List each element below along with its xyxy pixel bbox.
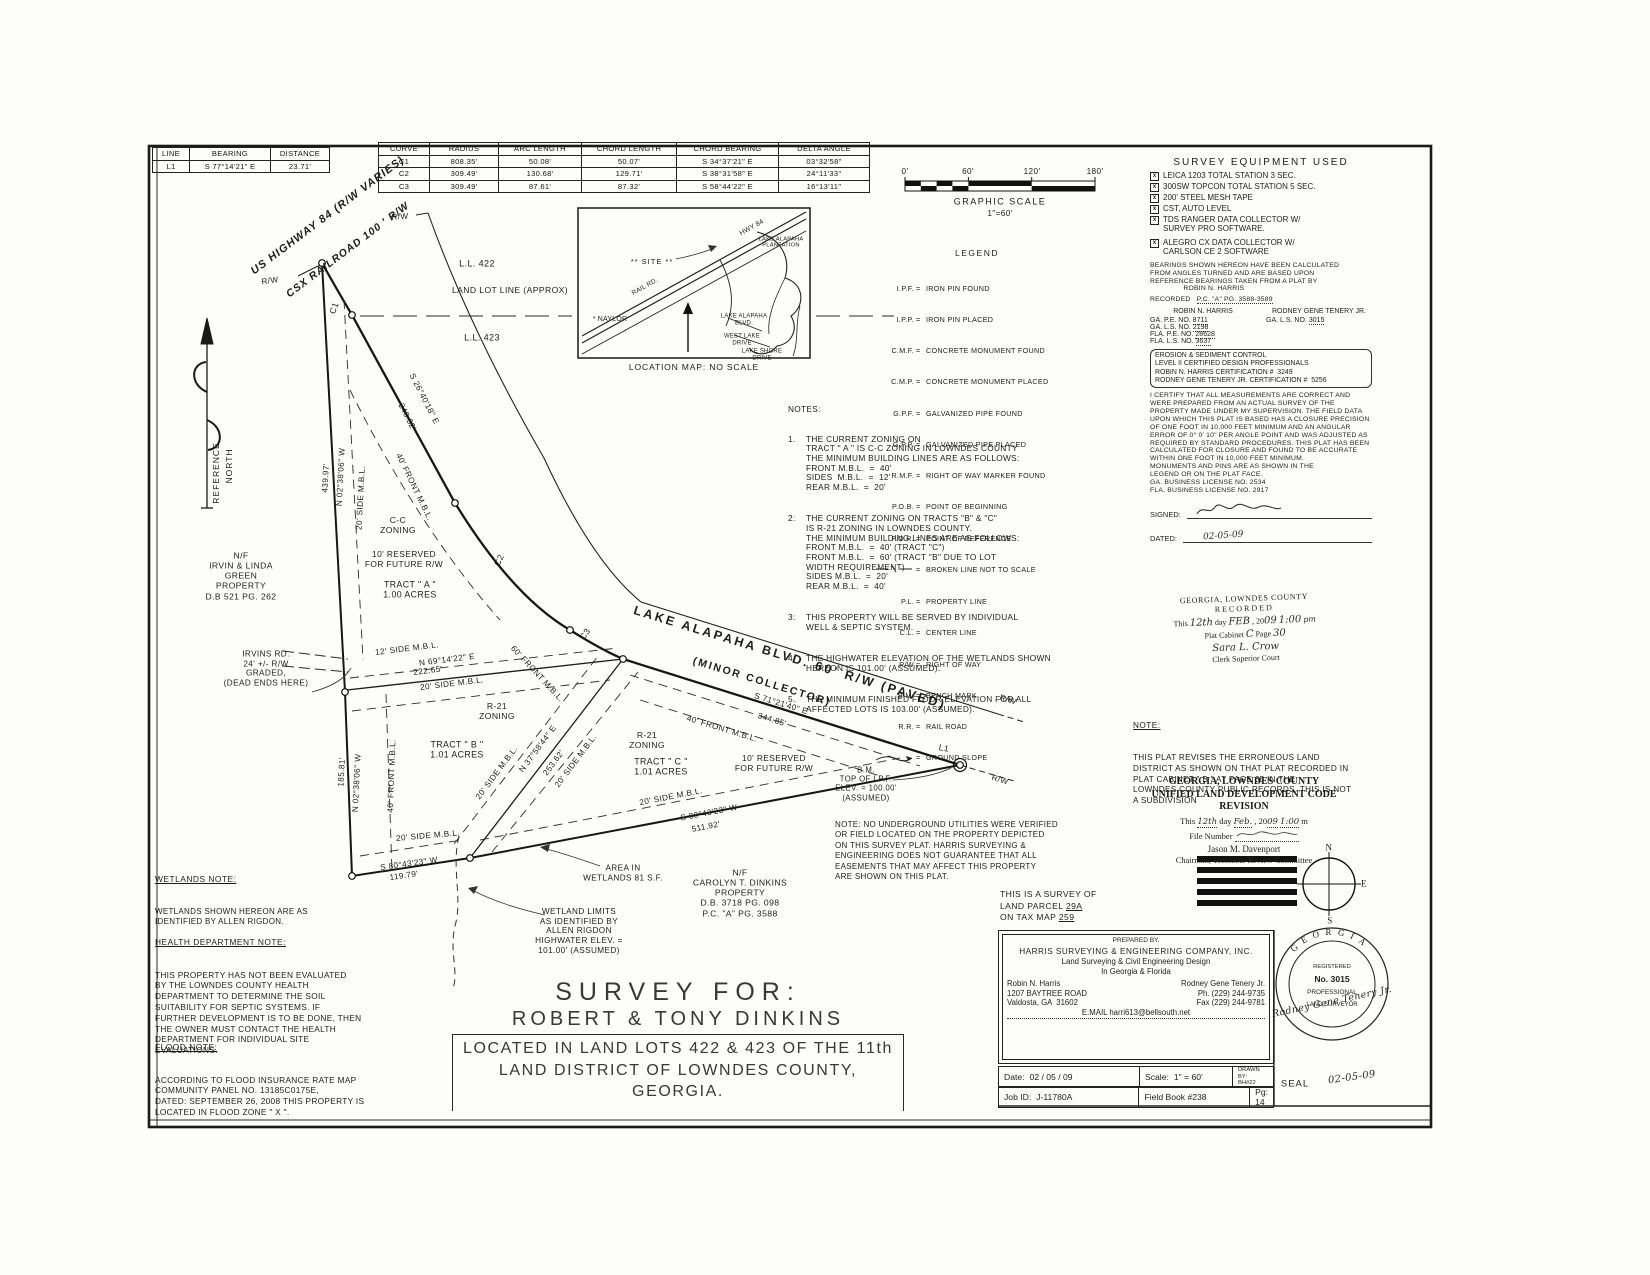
- scale-tick: 60': [962, 167, 974, 177]
- bearing-bottom-long: S 80°43'23" W: [680, 803, 739, 824]
- land-lot-line-label: LAND LOT LINE (APPROX): [452, 285, 568, 295]
- zoning-r21-label: R-21 ZONING: [629, 730, 665, 750]
- uldc-day: 12th: [1197, 817, 1217, 828]
- location-map-caption: LOCATION MAP: NO SCALE: [629, 362, 759, 372]
- survey-of-note: THIS IS A SURVEY OF LAND PARCEL 29A ON T…: [1000, 889, 1097, 924]
- email: E.MAIL harri613@bellsouth.net: [1007, 1008, 1265, 1019]
- uldc-year: 09: [1267, 817, 1278, 828]
- mbl-front40-label: 40' FRONT M.B.L.: [686, 714, 759, 745]
- stamp-month: FEB: [1228, 616, 1250, 628]
- compass-s: S: [1327, 916, 1332, 927]
- date-scale-row: Date:02 / 05 / 09 Scale:1" = 60' DRAWN B…: [998, 1066, 1274, 1088]
- distance-railroad: 248.32': [396, 402, 418, 433]
- seal-date: 02-05-09: [1327, 1069, 1376, 1087]
- mbl-side20-label: 20' SIDE M.B.L.: [639, 786, 704, 808]
- curve-c2-label: C2: [492, 553, 506, 568]
- stamp-day: 12th: [1190, 617, 1214, 629]
- line-table-header: DISTANCE: [271, 148, 330, 161]
- map-blvd-label: LAKE ALAPAHA BLVD.: [721, 313, 767, 326]
- wetlands-area-label: AREA IN WETLANDS 81 S.F.: [583, 863, 663, 882]
- zoning-r21-label: R-21 ZONING: [479, 701, 515, 721]
- distance-west-upper: 439.97': [320, 463, 331, 493]
- location-description: LOCATED IN LAND LOTS 422 & 423 OF THE 11…: [452, 1034, 904, 1111]
- recorded-stamp: GEORGIA, LOWNDES COUNTY RECORDED This 12…: [1149, 591, 1341, 668]
- erosion-certification-box: EROSION & SEDIMENT CONTROL LEVEL II CERT…: [1150, 349, 1372, 388]
- irvins-road-label: IRVINS RD. 24' +/- R/W GRADED, (DEAD END…: [224, 650, 309, 689]
- client-name: ROBERT & TONY DINKINS: [452, 1008, 904, 1031]
- line-table: LINE BEARING DISTANCE L1 S 77°14'21" E 2…: [152, 147, 330, 173]
- notes-title: NOTES:: [788, 405, 1088, 415]
- mbl-front40-label: 40' FRONT M.B.L.: [386, 739, 398, 813]
- compass-e: E: [1361, 879, 1367, 890]
- location-map-linework: [578, 208, 810, 358]
- mbl-front60-label: 60' FRONT M.B.L.: [508, 644, 565, 704]
- graphic-scale-bar: [905, 177, 1095, 191]
- dated-row: DATED: 02-05-09: [1150, 528, 1372, 543]
- mbl-side20-label: 20' SIDE M.B.L.: [354, 466, 367, 530]
- land-lot-422-label: L.L. 422: [459, 259, 495, 270]
- stamp-time: 1:00: [1279, 614, 1302, 626]
- tract-b-label: TRACT " B " 1.01 ACRES: [430, 740, 483, 761]
- checkbox-icon: x: [1150, 194, 1159, 203]
- distance-division-a: 222.65': [413, 664, 443, 677]
- reference-north-label: REFERENCE: [211, 442, 221, 503]
- seal-number: No. 3015: [1314, 974, 1350, 984]
- seal-signature: Rodney Gene Tenery Jr.: [1271, 984, 1393, 1020]
- company-name: HARRIS SURVEYING & ENGINEERING COMPANY, …: [1007, 947, 1265, 957]
- distance-bottom-long: 511.92': [691, 820, 721, 835]
- line-table-header: BEARING: [190, 148, 271, 161]
- map-rail-label: RAIL RD.: [631, 277, 660, 297]
- compass-n: N: [1326, 843, 1333, 854]
- flood-note: FLOOD NOTE: ACCORDING TO FLOOD INSURANCE…: [155, 1020, 395, 1140]
- stamp-cabinet: C: [1246, 628, 1254, 639]
- scale-tick: 0': [902, 167, 909, 177]
- legend-title: LEGEND: [872, 248, 1082, 259]
- graphic-scale-title: GRAPHIC SCALE: [954, 197, 1047, 208]
- rw-label: R/W: [261, 275, 279, 287]
- green-property-label: N/F IRVIN & LINDA GREEN PROPERTY D.B 521…: [206, 551, 277, 602]
- map-plantation-label: LAKE ALAPAHA PLANTATION: [759, 237, 804, 250]
- line-table-row: L1 S 77°14'21" E 23.71': [153, 160, 330, 173]
- preparer-left: Robin N. Harris 1207 BAYTREE ROAD Valdos…: [1007, 979, 1087, 1008]
- survey-plat-sheet: GEORGIA REGISTERED No. 3015 PROFESSIONAL…: [0, 0, 1650, 1275]
- mbl-side20-label: 20' SIDE M.B.L.: [396, 828, 461, 843]
- curve-table: CURVE RADIUS ARC LENGTH CHORD LENGTH CHO…: [378, 142, 870, 193]
- curve-table-row: C2309.49' 130.68'129.71' S 38°31'58" E24…: [379, 168, 870, 181]
- signed-row: SIGNED:: [1150, 504, 1372, 519]
- rw-label: R/W: [391, 212, 409, 223]
- main-title-block: SURVEY FOR: ROBERT & TONY DINKINS LOCATE…: [452, 978, 904, 1111]
- wetland-limits-label: WETLAND LIMITS AS IDENTIFIED BY ALLEN RI…: [535, 907, 623, 955]
- distance-blvd: 344.85': [757, 711, 788, 729]
- map-naylor-label: * NAYLOR: [593, 316, 628, 324]
- surveyor-certification: I CERTIFY THAT ALL MEASUREMENTS ARE CORR…: [1150, 392, 1372, 494]
- scale-tick: 180': [1087, 167, 1104, 177]
- checkbox-icon: x: [1150, 183, 1159, 192]
- utilities-note: NOTE: NO UNDERGROUND UTILITIES WERE VERI…: [835, 820, 1070, 882]
- uldc-month: Feb.: [1234, 817, 1253, 828]
- graphic-scale-ratio: 1"=60': [987, 209, 1012, 219]
- map-westlake-label: WEST LAKE DRIVE: [724, 333, 760, 346]
- tract-c-label: TRACT " C " 1.01 ACRES: [634, 757, 688, 778]
- curve-c1-label: C1: [327, 301, 341, 316]
- signature-scribble: [1187, 504, 1372, 519]
- checkbox-icon: x: [1150, 239, 1159, 248]
- bearing-west-upper: N 02°38'06" W: [335, 448, 348, 507]
- ground-slope-icon: [872, 753, 914, 765]
- uldc-time: 1:00: [1280, 817, 1299, 828]
- land-lot-423-label: L.L. 423: [464, 333, 500, 344]
- professionals: ROBIN N. HARRIS GA. P.E. NO. 8711 GA. L.…: [1150, 308, 1372, 345]
- reference-north-label: NORTH: [224, 448, 234, 483]
- mbl-side12-label: 12' SIDE M.B.L.: [375, 640, 440, 657]
- reserved-rw-label: 10' RESERVED FOR FUTURE R/W: [365, 550, 443, 570]
- seal-graphic: GEORGIA REGISTERED No. 3015 PROFESSIONAL…: [1276, 927, 1388, 1040]
- mbl-front40-label: 40' FRONT M.B.L.: [394, 452, 435, 522]
- prepared-by-box: PREPARED BY. HARRIS SURVEYING & ENGINEER…: [998, 930, 1274, 1064]
- map-lakeshore-label: LAKE SHORE DRIVE: [742, 348, 782, 361]
- preparer-right: Rodney Gene Tenery Jr. Ph. (229) 244-973…: [1181, 979, 1265, 1008]
- distance-west-lower: 185.81': [336, 757, 347, 787]
- reserved-rw-label: 10' RESERVED FOR FUTURE R/W: [735, 754, 813, 774]
- zoning-cc-label: C-C ZONING: [380, 515, 416, 535]
- seal-state-arc: GEORGIA: [1288, 927, 1372, 954]
- survey-for-title: SURVEY FOR:: [452, 978, 904, 1007]
- map-hwy84-label: HWY 84: [739, 218, 766, 237]
- bearings-note: BEARINGS SHOWN HEREON HAVE BEEN CALCULAT…: [1150, 262, 1372, 294]
- seal-registered: REGISTERED: [1313, 964, 1351, 970]
- checkbox-icon: x: [1150, 172, 1159, 181]
- distance-bottom-short: 119.79': [389, 869, 419, 883]
- checkbox-icon: x: [1150, 205, 1159, 214]
- benchmark-label: B.M. TOP OF I.P.F. ELEV. = 100.00' (ASSU…: [835, 766, 897, 803]
- svg-text:GEORGIA: GEORGIA: [1288, 927, 1372, 954]
- equipment-title: SURVEY EQUIPMENT USED: [1150, 157, 1372, 168]
- seal-label: SEAL: [1281, 1078, 1309, 1089]
- notes-block: NOTES: 1.THE CURRENT ZONING ON TRACT " A…: [788, 386, 1088, 736]
- tract-a-label: TRACT " A " 1.00 ACRES: [383, 580, 436, 601]
- mbl-side20-label: 20' SIDE M.B.L.: [420, 675, 485, 692]
- stamp-year: 09: [1264, 615, 1277, 626]
- right-column: SURVEY EQUIPMENT USED xLEICA 1203 TOTAL …: [1150, 157, 1372, 543]
- curve-table-row: C3309.49' 87.61'87.32' S 58°44'22" E16°1…: [379, 180, 870, 193]
- uldc-revision-block: GEORGIA, LOWNDES COUNTY UNIFIED LAND DEV…: [1130, 776, 1358, 865]
- curve-table-row: C1808.35' 50.08'50.07' S 34°37'21" E03°3…: [379, 155, 870, 168]
- curve-c3-label: C3: [577, 626, 592, 641]
- scale-tick: 120': [1024, 167, 1041, 177]
- line-table-header: LINE: [153, 148, 190, 161]
- checkbox-icon: x: [1150, 216, 1159, 225]
- dated-value: 02-05-09: [1203, 529, 1244, 542]
- dinkins-property-label: N/F CAROLYN T. DINKINS PROPERTY D.B. 371…: [693, 868, 787, 919]
- stamp-page: 30: [1273, 627, 1286, 638]
- recorded-line: RECORDED P.C. "A" PG. 3588-3589: [1150, 296, 1372, 304]
- job-fieldbook-row: Job ID:J-11780A Field Book #238 Pg: 14: [998, 1086, 1274, 1108]
- uldc-file-scribble: [1235, 829, 1299, 842]
- line-l1-label: L1: [938, 742, 950, 754]
- map-site-label: ** SITE **: [631, 258, 674, 266]
- curve-table-header-row: CURVE RADIUS ARC LENGTH CHORD LENGTH CHO…: [379, 143, 870, 156]
- stamp-ampm: pm: [1303, 614, 1316, 623]
- bearing-west-lower: N 02°38'06" W: [351, 754, 364, 813]
